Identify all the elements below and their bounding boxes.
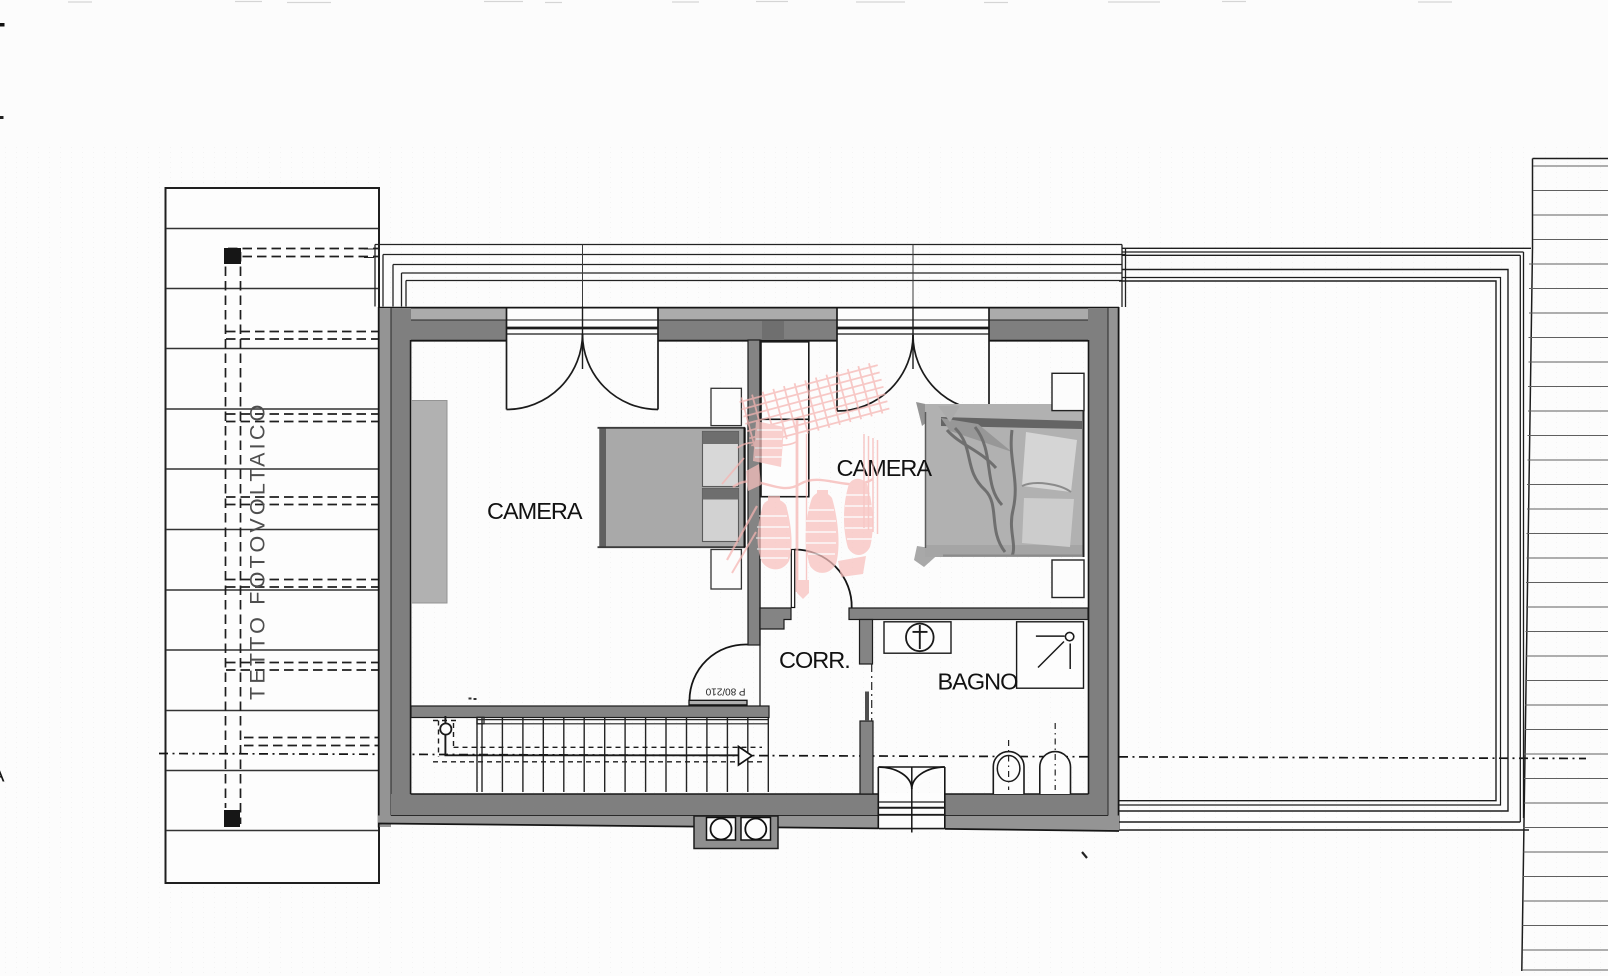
svg-text:CAMERA: CAMERA	[837, 455, 933, 481]
svg-text:A: A	[0, 765, 5, 787]
svg-text:CORR.: CORR.	[779, 647, 850, 673]
svg-text:P 80/210: P 80/210	[705, 686, 745, 697]
svg-text:CAMERA: CAMERA	[487, 498, 583, 524]
svg-text:BAGNO: BAGNO	[938, 669, 1019, 695]
svg-text:TETTO FOTOVOLTAICO: TETTO FOTOVOLTAICO	[246, 402, 270, 701]
